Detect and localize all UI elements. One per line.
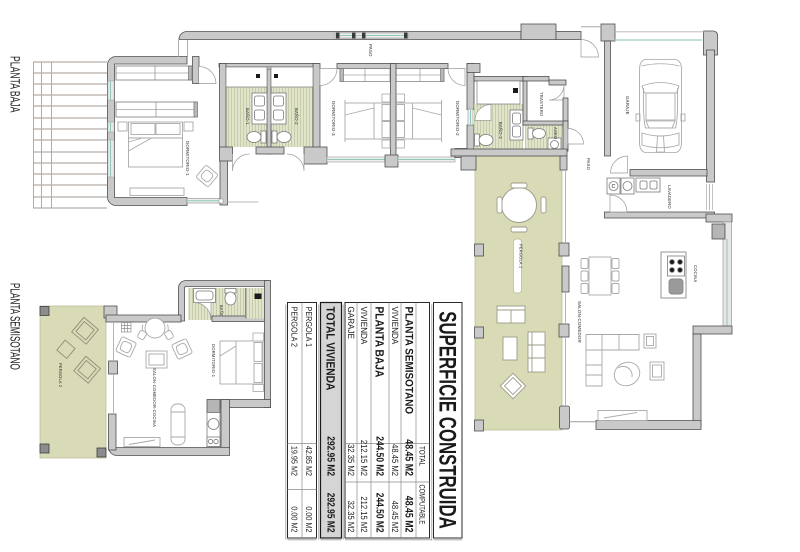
svg-text:PASO: PASO	[586, 158, 591, 171]
svg-text:SALON-COMEDOR-COCINA: SALON-COMEDOR-COCINA	[152, 368, 157, 427]
svg-text:DORMITORIO-1: DORMITORIO-1	[211, 344, 216, 378]
svg-text:BAÑO-3: BAÑO-3	[498, 122, 503, 139]
svg-text:32.35 M2: 32.35 M2	[346, 444, 356, 476]
svg-text:48.45 M2: 48.45 M2	[390, 501, 400, 533]
svg-text:42.85 M2: 42.85 M2	[304, 446, 314, 476]
svg-text:DORMITORIO-3: DORMITORIO-3	[331, 101, 336, 136]
svg-text:PERGOLA 1: PERGOLA 1	[304, 307, 314, 348]
svg-text:SALON-COMEDOR: SALON-COMEDOR	[577, 301, 582, 343]
svg-text:PLANTA SEMISOTANO: PLANTA SEMISOTANO	[402, 307, 414, 415]
svg-text:PLANTA BAJA: PLANTA BAJA	[8, 56, 23, 113]
svg-text:DORMITORIO-2: DORMITORIO-2	[455, 101, 460, 136]
svg-text:TRASTERO: TRASTERO	[539, 92, 544, 117]
svg-text:TOTAL: TOTAL	[417, 446, 426, 466]
svg-text:48.45 M2: 48.45 M2	[390, 444, 400, 476]
svg-text:COMPUTABLE: COMPUTABLE	[417, 485, 426, 525]
svg-text:32.35 M2: 32.35 M2	[346, 501, 356, 533]
svg-text:C: C	[612, 184, 616, 190]
svg-text:COCINA: COCINA	[693, 265, 698, 283]
svg-text:244.50 M2: 244.50 M2	[374, 493, 386, 533]
svg-text:PASO: PASO	[368, 44, 373, 57]
svg-text:GARAJE: GARAJE	[625, 96, 630, 115]
svg-text:GARAJE: GARAJE	[346, 307, 356, 339]
svg-text:LAVADERO: LAVADERO	[667, 185, 672, 209]
svg-text:244.50 M2: 244.50 M2	[374, 436, 386, 476]
svg-text:BAÑO-1: BAÑO-1	[245, 108, 250, 125]
svg-text:292.95 M2: 292.95 M2	[325, 493, 337, 533]
svg-text:212.15 M2: 212.15 M2	[359, 496, 369, 532]
svg-text:292.95 M2: 292.95 M2	[325, 436, 337, 476]
svg-text:BAÑO-2: BAÑO-2	[294, 108, 299, 125]
svg-text:0.00 M2: 0.00 M2	[304, 506, 314, 532]
svg-text:PERGOLA 2: PERGOLA 2	[58, 363, 63, 388]
svg-text:212.15 M2: 212.15 M2	[359, 440, 369, 476]
svg-text:19.95 M2: 19.95 M2	[290, 446, 300, 476]
svg-text:0.00 M2: 0.00 M2	[290, 506, 300, 532]
svg-text:VIVIENDA: VIVIENDA	[390, 307, 400, 345]
svg-text:DORMITORIO-1: DORMITORIO-1	[185, 141, 190, 176]
svg-text:PERGOLA 1: PERGOLA 1	[519, 244, 524, 269]
svg-text:PLANTA SEMISOTANO: PLANTA SEMISOTANO	[8, 283, 23, 370]
svg-text:VIVIENDA: VIVIENDA	[359, 307, 369, 345]
svg-text:SUPERFICIE CONSTRUIDA: SUPERFICIE CONSTRUIDA	[434, 311, 461, 528]
svg-text:ASEO: ASEO	[553, 127, 558, 140]
svg-text:48.45 M2: 48.45 M2	[402, 496, 414, 533]
svg-text:TOTAL VIVIENDA: TOTAL VIVIENDA	[324, 307, 338, 391]
svg-text:PERGOLA 2: PERGOLA 2	[290, 307, 300, 348]
svg-text:48.45 M2: 48.45 M2	[402, 439, 414, 476]
svg-text:PLANTA BAJA: PLANTA BAJA	[373, 307, 387, 378]
